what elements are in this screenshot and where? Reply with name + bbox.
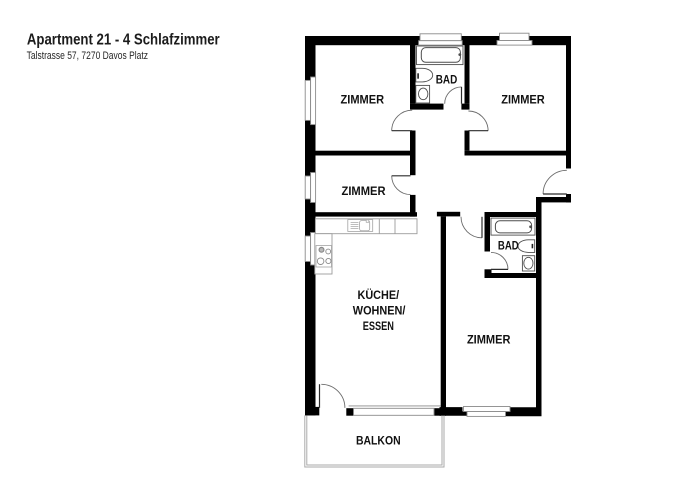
svg-text:WOHNEN/: WOHNEN/ — [353, 304, 406, 318]
svg-text:KÜCHE/: KÜCHE/ — [358, 287, 400, 302]
svg-text:BAD: BAD — [436, 73, 458, 87]
svg-text:Apartment 21 - 4 Schlafzimmer: Apartment 21 - 4 Schlafzimmer — [27, 32, 220, 49]
svg-text:ESSEN: ESSEN — [363, 319, 394, 333]
svg-text:ZIMMER: ZIMMER — [342, 184, 386, 198]
svg-text:ZIMMER: ZIMMER — [501, 92, 545, 106]
svg-text:ZIMMER: ZIMMER — [341, 93, 385, 107]
svg-text:BAD: BAD — [498, 239, 519, 253]
svg-text:Talstrasse 57, 7270 Davos Plat: Talstrasse 57, 7270 Davos Platz — [27, 50, 148, 62]
svg-text:BALKON: BALKON — [356, 434, 401, 448]
svg-text:ZIMMER: ZIMMER — [467, 333, 511, 347]
